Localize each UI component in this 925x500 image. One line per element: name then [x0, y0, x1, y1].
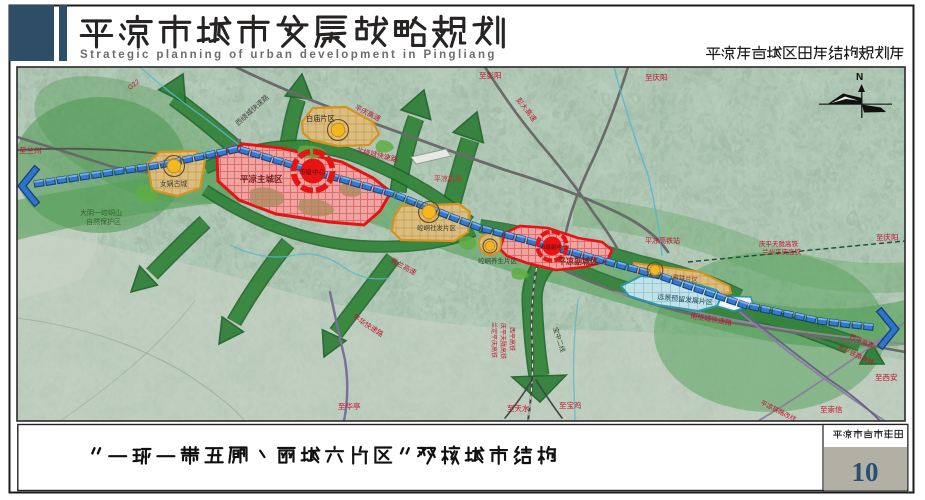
svg-text:崆峒养生片区: 崆峒养生片区	[478, 256, 518, 265]
svg-text:自然保护区: 自然保护区	[86, 217, 121, 226]
svg-text:市级中心: 市级中心	[299, 167, 326, 176]
svg-text:至庆阳: 至庆阳	[645, 72, 668, 82]
svg-text:10: 10	[852, 457, 879, 487]
svg-text:至华亭: 至华亭	[338, 401, 361, 411]
svg-text:市级副中心: 市级副中心	[540, 243, 568, 251]
svg-text:至兰州: 至兰州	[19, 145, 42, 155]
svg-text:兰州平庆高铁: 兰州平庆高铁	[762, 247, 802, 256]
svg-text:至天水: 至天水	[507, 403, 530, 413]
svg-text:至宝鸡: 至宝鸡	[559, 400, 582, 410]
svg-text:崆峒社发片区: 崆峒社发片区	[417, 223, 457, 232]
svg-text:至西安: 至西安	[875, 372, 898, 382]
svg-text:Strategic planning of urban de: Strategic planning of urban development …	[80, 49, 497, 61]
svg-text:女娲古城: 女娲古城	[160, 179, 187, 188]
svg-text:西平高铁: 西平高铁	[508, 327, 516, 351]
svg-text:庆平天陇高铁: 庆平天陇高铁	[499, 323, 507, 359]
svg-text:兰定平庆高铁: 兰定平庆高铁	[490, 322, 498, 358]
svg-text:大阴一崆峒山: 大阴一崆峒山	[80, 208, 122, 217]
svg-text:平凉主城区: 平凉主城区	[240, 174, 283, 184]
svg-text:白庙片区: 白庙片区	[306, 114, 335, 123]
svg-text:N: N	[856, 72, 863, 83]
svg-text:庆平天陇高铁: 庆平天陇高铁	[759, 239, 799, 248]
svg-text:平凉高铁站: 平凉高铁站	[645, 236, 680, 245]
svg-text:平凉机场: 平凉机场	[434, 174, 462, 183]
svg-text:至崇信: 至崇信	[820, 404, 843, 414]
svg-text:至庆阳: 至庆阳	[876, 232, 899, 242]
svg-text:至彭阳: 至彭阳	[479, 70, 502, 80]
svg-text:平凉副城区: 平凉副城区	[558, 256, 598, 266]
